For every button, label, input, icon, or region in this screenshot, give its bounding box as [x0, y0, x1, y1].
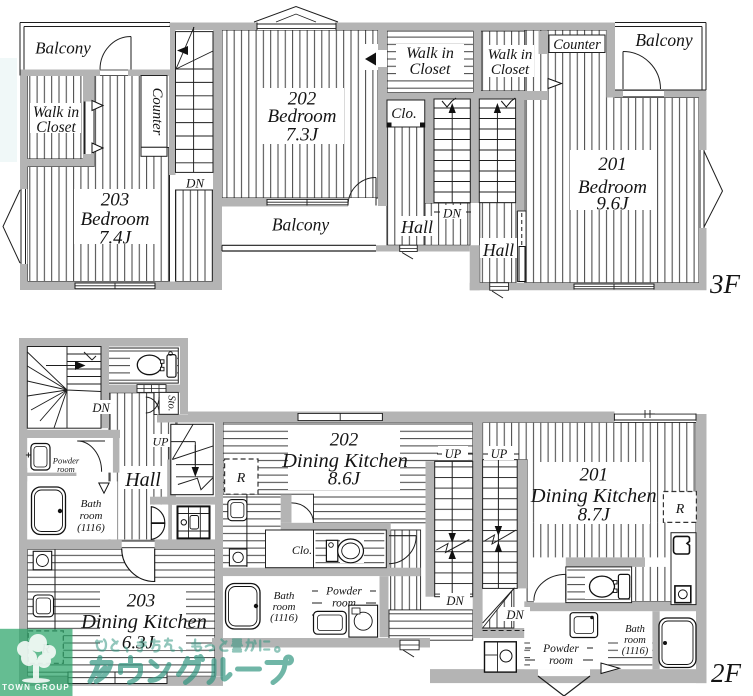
svg-text:Sto.: Sto. [166, 395, 177, 411]
svg-text:DN: DN [185, 176, 205, 191]
svg-text:UP: UP [445, 447, 462, 461]
svg-text:R: R [236, 471, 246, 486]
svg-text:9.6J: 9.6J [596, 194, 630, 215]
svg-text:DN: DN [91, 401, 110, 415]
svg-text:Hall: Hall [400, 217, 433, 237]
svg-text:Dining Kitchen: Dining Kitchen [80, 611, 207, 633]
svg-text:Balcony: Balcony [35, 39, 91, 58]
svg-text:Counter: Counter [149, 88, 165, 136]
svg-text:8.7J: 8.7J [578, 505, 612, 526]
svg-text:Hall: Hall [482, 240, 514, 260]
svg-text:(1116): (1116) [77, 522, 105, 534]
svg-text:Bath: Bath [625, 624, 645, 635]
svg-text:DN: DN [445, 594, 464, 608]
svg-text:Clo.: Clo. [292, 543, 312, 557]
svg-text:(1116): (1116) [622, 646, 649, 657]
svg-text:DN: DN [442, 206, 462, 221]
svg-text:room: room [624, 635, 646, 646]
svg-text:Clo.: Clo. [391, 106, 416, 122]
svg-text:203: 203 [101, 190, 130, 211]
svg-text:203: 203 [127, 591, 156, 612]
svg-text:Bath: Bath [81, 498, 102, 510]
svg-text:2F: 2F [711, 658, 742, 688]
svg-text:Closet: Closet [36, 119, 76, 136]
svg-text:Closet: Closet [410, 61, 451, 78]
svg-text:TOWN GROUP: TOWN GROUP [2, 683, 70, 692]
svg-text:room: room [80, 510, 103, 522]
svg-text:Counter: Counter [553, 37, 601, 53]
svg-text:3F: 3F [709, 269, 741, 299]
svg-text:Closet: Closet [491, 62, 530, 78]
svg-text:7.4J: 7.4J [99, 228, 133, 249]
svg-text:room: room [57, 464, 75, 474]
svg-text:DN: DN [505, 608, 524, 622]
svg-text:202: 202 [330, 430, 359, 451]
svg-text:Powder: Powder [325, 586, 362, 598]
svg-text:room: room [549, 655, 573, 667]
svg-text:7.3J: 7.3J [286, 125, 320, 146]
svg-text:(1116): (1116) [270, 612, 298, 624]
svg-text:Walk in: Walk in [406, 45, 454, 62]
svg-text:Balcony: Balcony [635, 30, 693, 50]
svg-text:8.6J: 8.6J [328, 469, 362, 490]
svg-text:UP: UP [491, 447, 508, 461]
svg-text:Walk in: Walk in [488, 47, 533, 63]
svg-text:UP: UP [153, 435, 170, 449]
svg-text:R: R [675, 502, 685, 517]
svg-text:Balcony: Balcony [272, 215, 330, 235]
svg-text:201: 201 [579, 465, 608, 486]
svg-text:201: 201 [598, 154, 627, 175]
svg-text:Powder: Powder [542, 643, 579, 655]
svg-text:Hall: Hall [124, 469, 161, 491]
